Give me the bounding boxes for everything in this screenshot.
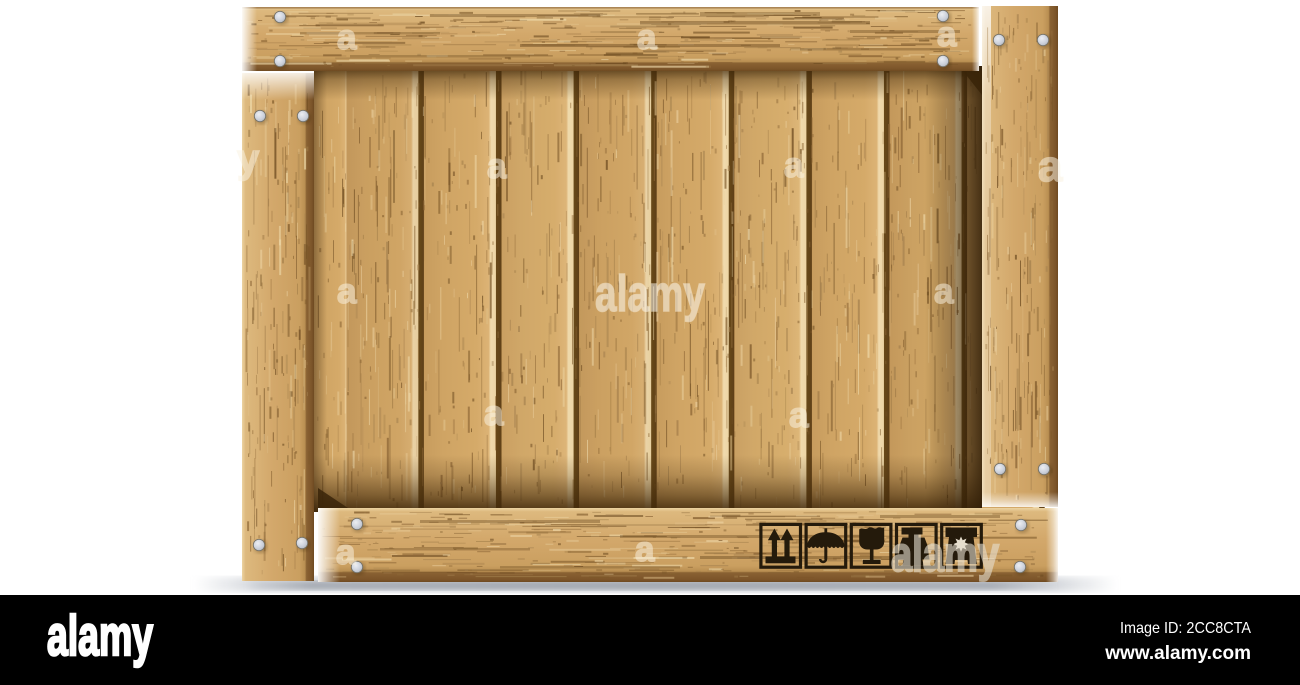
svg-text:alamy: alamy (595, 265, 705, 322)
svg-text:www.alamy.com: www.alamy.com (1104, 643, 1251, 664)
svg-text:y: y (237, 137, 260, 181)
svg-text:a: a (487, 147, 507, 186)
svg-text:a: a (337, 272, 357, 311)
svg-text:a: a (934, 272, 954, 311)
svg-text:a: a (336, 533, 356, 572)
svg-text:alamy: alamy (47, 604, 153, 668)
svg-text:a: a (337, 18, 357, 57)
svg-text:a: a (635, 530, 655, 569)
svg-text:a: a (784, 146, 804, 185)
svg-text:alamy: alamy (891, 528, 999, 582)
svg-text:a: a (637, 18, 657, 57)
svg-text:Image ID: 2CC8CTA: Image ID: 2CC8CTA (1120, 620, 1251, 637)
svg-text:a: a (1038, 142, 1063, 191)
svg-text:a: a (789, 396, 809, 435)
svg-text:a: a (937, 15, 957, 54)
svg-text:a: a (484, 394, 504, 433)
